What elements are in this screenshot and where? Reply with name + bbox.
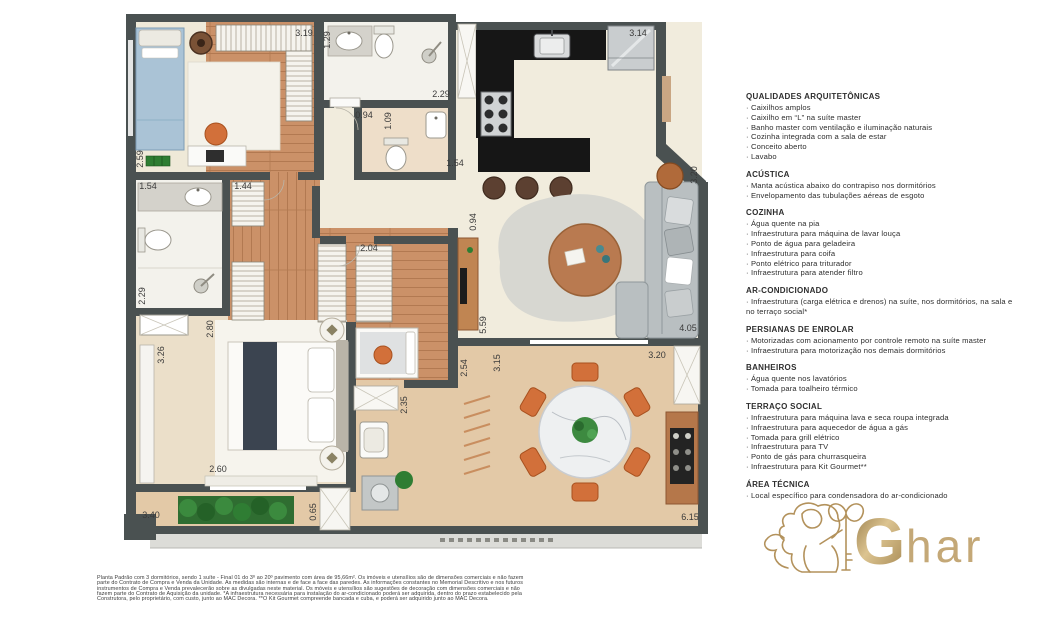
feature-item: · Ponto elétrico para triturador [746,259,1018,269]
bed-runner [243,342,277,450]
cushion [374,346,392,364]
stool-icon [516,177,538,199]
feature-item: · Ponto de gás para churrasqueira [746,452,1018,462]
panel-section: QUALIDADES ARQUITETÔNICAS· Caixilhos amp… [746,92,1018,162]
side-table-icon [657,163,683,189]
dimension-label: 3.20 [648,350,666,360]
pillow [665,257,694,286]
feature-item: · Infraestrutura (carga elétrica e dreno… [746,297,1018,317]
feature-item: · Tomada para toalheiro térmico [746,384,1018,394]
console-shelf [330,98,360,107]
feature-item: · Motorizadas com acionamento por contro… [746,336,1018,346]
panel-section-title: BANHEIROS [746,363,1018,373]
dimension-label: 1.44 [234,181,252,191]
dimension-label: 2.35 [399,396,409,414]
toilet-icon [145,230,171,250]
dimension-label: 2.04 [360,243,378,253]
panel-section-title: PERSIANAS DE ENROLAR [746,325,1018,335]
pillow [664,226,694,256]
dimension-label: 3.26 [156,346,166,364]
feature-item: · Infraestrutura para Kit Gourmet** [746,462,1018,472]
dimension-label: 1.54 [446,158,464,168]
door-leaf [662,76,671,122]
feature-item: · Água quente na pia [746,219,1018,229]
laptop-icon [206,150,224,162]
logo-g: G [854,504,905,578]
panel-section: AR-CONDICIONADO· Infraestrutura (carga e… [746,286,1018,317]
pillow [664,196,693,225]
panel-section-title: ACÚSTICA [746,170,1018,180]
feature-item: · Envelopamento das tubulações aéreas de… [746,191,1018,201]
feature-item: · Caixilho em “L” na suíte master [746,113,1018,123]
dimension-label: 0.94 [355,110,373,120]
ghar-logo: G har [758,486,1008,582]
page: 3.191.292.290.941.091.543.142.591.541.44… [0,0,1040,625]
panel-section: TERRAÇO SOCIAL· Infraestrutura para máqu… [746,402,1018,472]
tv-icon [460,268,467,304]
feature-item: · Infraestrutura para motorização nos de… [746,346,1018,356]
feature-item: · Água quente nos lavatórios [746,374,1018,384]
feature-item: · Manta acústica abaixo do contrapiso no… [746,181,1018,191]
dimension-label: 3.40 [142,510,160,520]
dimension-label: 3.20 [689,166,699,184]
dimension-label: 5.59 [478,316,488,334]
headboard [336,340,348,452]
lion-key-icon [765,503,864,572]
sink-icon [426,112,446,138]
panel-section: BANHEIROS· Água quente nos lavatórios· T… [746,363,1018,394]
pillow [406,332,415,374]
sofa-chaise [616,282,648,338]
toilet-icon [386,146,406,170]
dimension-label: 6.15 [681,512,699,522]
disclaimer-line: Construtora, pelo proprietário, com cust… [97,597,575,602]
panel-section: COZINHA· Água quente na pia· Infraestrut… [746,208,1018,278]
dimension-label: 3.19 [295,28,313,38]
disclaimer-text: Planta Padrão com 3 dormitórios, sendo 1… [97,576,575,602]
feature-item: · Infraestrutura para aquecedor de água … [746,423,1018,433]
panel-section-title: TERRAÇO SOCIAL [746,402,1018,412]
dimension-label: 3.15 [492,354,502,372]
feature-item: · Ponto de água para geladeira [746,239,1018,249]
feature-item: · Tomada para grill elétrico [746,433,1018,443]
feature-item: · Caixilhos amplos [746,103,1018,113]
toilet-icon [375,34,393,58]
dimension-label: 2.60 [209,464,227,474]
desk-chair-icon [205,123,227,145]
balcony-slab [150,532,702,548]
dimension-label: 1.29 [322,31,332,49]
panel-section-title: AR-CONDICIONADO [746,286,1018,296]
sink-icon [336,32,362,50]
dimension-label: 2.54 [459,359,469,377]
dimension-label: 0.65 [308,503,318,521]
feature-item: · Infraestrutura para coifa [746,249,1018,259]
feature-item: · Lavabo [746,152,1018,162]
feature-item: · Cozinha integrada com a sala de estar [746,132,1018,142]
panel-section-title: QUALIDADES ARQUITETÔNICAS [746,92,1018,102]
feature-item: · Infraestrutura para máquina de lavar l… [746,229,1018,239]
pillow [308,348,334,392]
feature-item: · Infraestrutura para máquina lava e sec… [746,413,1018,423]
dimension-label: 2.59 [135,150,145,168]
plant-box-icon [146,156,170,166]
bench-icon [205,476,317,486]
feature-item: · Conceito aberto [746,142,1018,152]
area-rug [188,62,280,150]
dimension-label: 1.09 [383,112,393,130]
pillow [308,398,334,442]
stool-icon [483,177,505,199]
island-counter [478,138,590,172]
feature-item: · Infraestrutura para atender filtro [746,268,1018,278]
panel-section-title: COZINHA [746,208,1018,218]
panel-section: PERSIANAS DE ENROLAR· Motorizadas com ac… [746,325,1018,356]
dimension-label: 0.94 [468,213,478,231]
panel-section: ACÚSTICA· Manta acústica abaixo do contr… [746,170,1018,201]
dimension-label: 1.54 [139,181,157,191]
pillow [665,289,694,318]
dimension-label: 2.29 [137,287,147,305]
plant-icon [395,471,413,489]
dimension-label: 2.80 [205,320,215,338]
dimension-label: 4.05 [679,323,697,333]
logo-rest: har [906,520,984,572]
dimension-label: 3.14 [629,28,647,38]
dimension-label: 2.29 [432,89,450,99]
features-panel: QUALIDADES ARQUITETÔNICAS· Caixilhos amp… [746,92,1018,509]
feature-item: · Banho master com ventilação e iluminaç… [746,123,1018,133]
feature-item: · Infraestrutura para TV [746,442,1018,452]
